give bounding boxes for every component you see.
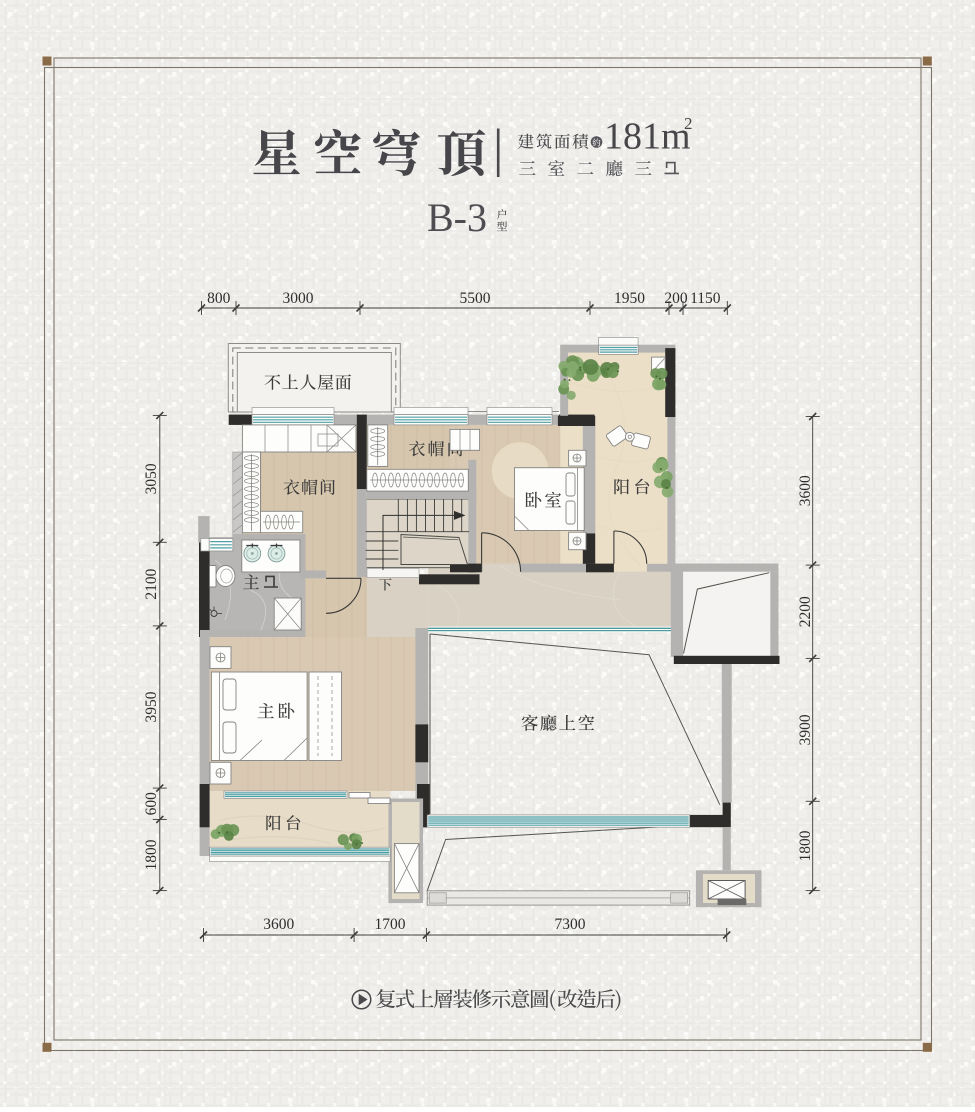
svg-text:200: 200 xyxy=(664,290,688,307)
svg-text:3950: 3950 xyxy=(143,691,160,722)
svg-text:600: 600 xyxy=(143,792,160,816)
svg-text:1800: 1800 xyxy=(797,830,814,861)
svg-text:3000: 3000 xyxy=(283,290,314,307)
svg-text:1800: 1800 xyxy=(143,839,160,870)
svg-text:1700: 1700 xyxy=(375,916,406,933)
svg-text:2100: 2100 xyxy=(143,568,160,599)
svg-text:3600: 3600 xyxy=(797,475,814,506)
svg-text:3900: 3900 xyxy=(797,714,814,745)
svg-text:1150: 1150 xyxy=(690,290,721,307)
svg-text:1950: 1950 xyxy=(614,290,645,307)
svg-text:5500: 5500 xyxy=(460,290,491,307)
svg-text:2200: 2200 xyxy=(797,596,814,627)
svg-text:181m: 181m xyxy=(604,116,691,158)
svg-text:B-3: B-3 xyxy=(427,195,487,240)
svg-text:800: 800 xyxy=(207,290,231,307)
svg-text:2: 2 xyxy=(684,114,693,133)
svg-text:3600: 3600 xyxy=(263,916,294,933)
svg-text:7300: 7300 xyxy=(555,916,586,933)
svg-text:3050: 3050 xyxy=(143,463,160,494)
